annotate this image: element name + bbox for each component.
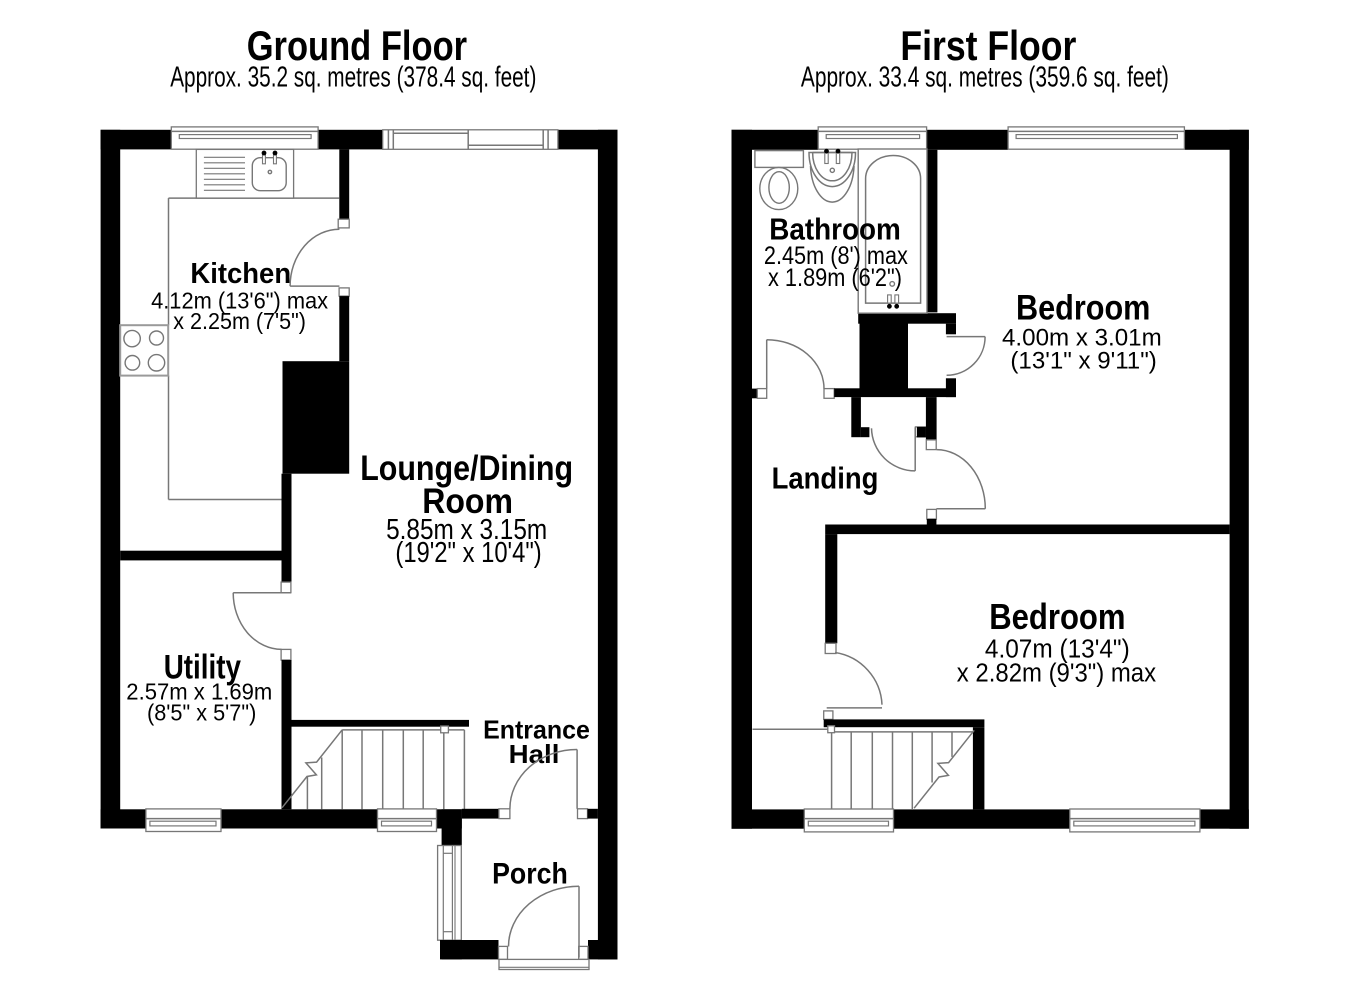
svg-text:Approx. 33.4 sq. metres (359.6: Approx. 33.4 sq. metres (359.6 sq. feet) <box>801 60 1169 92</box>
svg-text:Bedroom: Bedroom <box>1016 289 1150 328</box>
svg-text:Porch: Porch <box>492 858 568 891</box>
svg-text:x 2.82m (9'3") max: x 2.82m (9'3") max <box>957 659 1157 687</box>
svg-text:Approx. 35.2 sq. metres (378.4: Approx. 35.2 sq. metres (378.4 sq. feet) <box>170 60 536 92</box>
svg-text:(8'5" x 5'7"): (8'5" x 5'7") <box>147 700 256 726</box>
svg-text:x 2.25m (7'5"): x 2.25m (7'5") <box>173 308 306 334</box>
svg-text:Kitchen: Kitchen <box>190 258 291 290</box>
svg-text:Bedroom: Bedroom <box>989 597 1125 637</box>
svg-text:(13'1" x 9'11"): (13'1" x 9'11") <box>1010 348 1156 375</box>
svg-text:x 1.89m (6'2"): x 1.89m (6'2") <box>768 264 902 292</box>
svg-text:Landing: Landing <box>772 463 879 496</box>
svg-text:(19'2" x 10'4"): (19'2" x 10'4") <box>395 537 541 569</box>
